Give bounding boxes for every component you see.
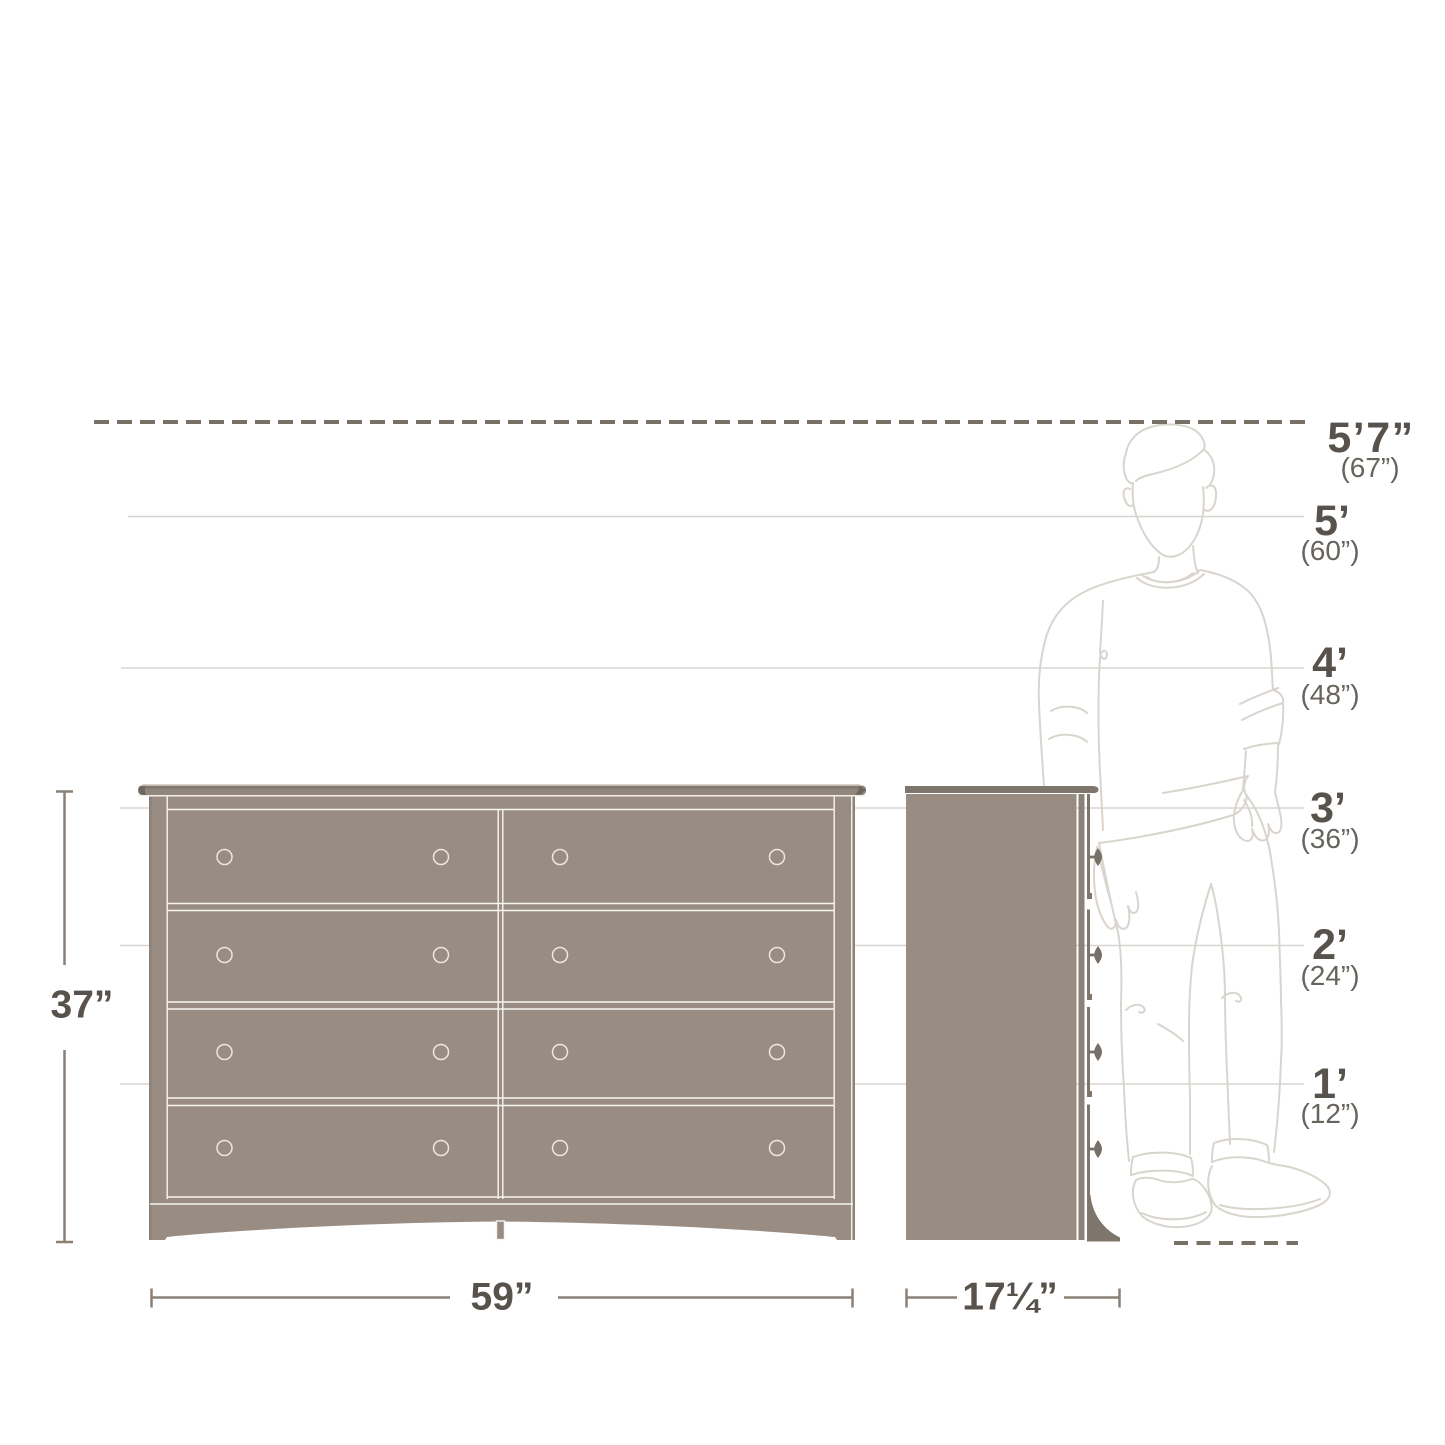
svg-text:(67”): (67”) <box>1340 452 1399 483</box>
svg-text:(48”): (48”) <box>1300 679 1359 710</box>
svg-text:(60”): (60”) <box>1300 535 1359 566</box>
svg-text:(12”): (12”) <box>1300 1098 1359 1129</box>
svg-text:(36”): (36”) <box>1300 823 1359 854</box>
svg-text:(24”): (24”) <box>1300 960 1359 991</box>
svg-text:17¼”: 17¼” <box>962 1276 1057 1319</box>
svg-text:37”: 37” <box>51 984 114 1027</box>
svg-text:59”: 59” <box>471 1276 534 1319</box>
